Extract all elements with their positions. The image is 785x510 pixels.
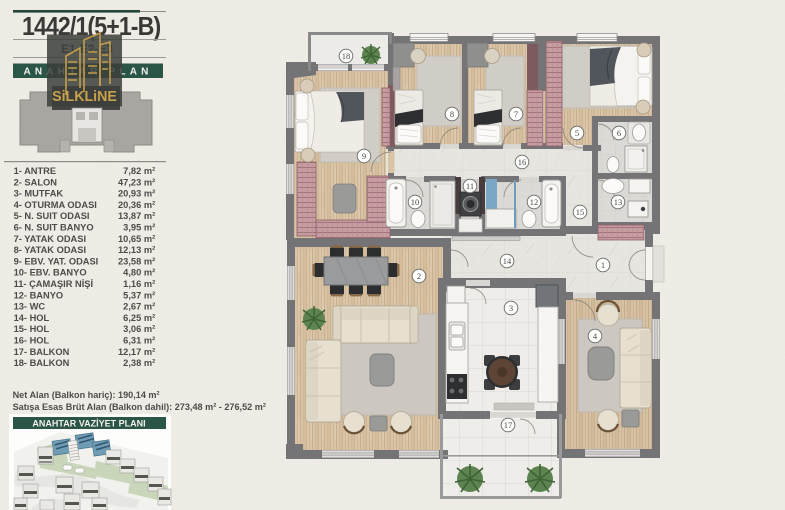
- svg-text:10: 10: [411, 197, 420, 207]
- svg-text:7,82 m²: 7,82 m²: [123, 166, 155, 177]
- svg-text:3- MUTFAK: 3- MUTFAK: [14, 188, 64, 199]
- svg-text:17- BALKON: 17- BALKON: [14, 347, 70, 358]
- svg-text:4,80 m²: 4,80 m²: [123, 268, 155, 279]
- svg-text:14: 14: [503, 256, 512, 266]
- svg-text:1: 1: [601, 260, 605, 270]
- svg-text:20,36 m²: 20,36 m²: [118, 200, 155, 211]
- svg-text:2,67 m²: 2,67 m²: [123, 301, 155, 312]
- svg-text:1- ANTRE: 1- ANTRE: [14, 166, 57, 177]
- svg-text:6: 6: [617, 128, 621, 138]
- svg-text:10- EBV. BANYO: 10- EBV. BANYO: [14, 268, 87, 279]
- svg-text:Satışa Esas Brüt Alan (Balkon: Satışa Esas Brüt Alan (Balkon dahil): 27…: [13, 402, 266, 412]
- svg-text:16: 16: [518, 157, 527, 167]
- svg-text:12: 12: [530, 197, 539, 207]
- svg-text:SiLKLiNE: SiLKLiNE: [52, 89, 117, 105]
- svg-text:Net Alan (Balkon hariç): 190,1: Net Alan (Balkon hariç): 190,14 m²: [13, 390, 160, 400]
- svg-text:11- ÇAMAŞIR NİŞİ: 11- ÇAMAŞIR NİŞİ: [14, 279, 94, 290]
- svg-text:12,13 m²: 12,13 m²: [118, 245, 155, 256]
- svg-text:20,93 m²: 20,93 m²: [118, 188, 155, 199]
- svg-text:3,95 m²: 3,95 m²: [123, 222, 155, 233]
- svg-text:13: 13: [614, 197, 623, 207]
- svg-text:5,37 m²: 5,37 m²: [123, 290, 155, 301]
- svg-text:10,65 m²: 10,65 m²: [118, 234, 155, 245]
- svg-text:6- N. SUIT BANYO: 6- N. SUIT BANYO: [14, 222, 94, 233]
- svg-text:18: 18: [342, 51, 351, 61]
- svg-text:15: 15: [576, 207, 585, 217]
- svg-text:2,38 m²: 2,38 m²: [123, 358, 155, 369]
- svg-text:5- N. SUIT ODASI: 5- N. SUIT ODASI: [14, 211, 90, 222]
- svg-text:8: 8: [450, 109, 454, 119]
- svg-text:9: 9: [362, 151, 366, 161]
- svg-text:7: 7: [514, 109, 518, 119]
- svg-text:47,23 m²: 47,23 m²: [118, 177, 155, 188]
- svg-text:13- WC: 13- WC: [14, 301, 46, 312]
- svg-text:2- SALON: 2- SALON: [14, 177, 58, 188]
- svg-text:14- HOL: 14- HOL: [14, 313, 50, 324]
- svg-text:4- OTURMA ODASI: 4- OTURMA ODASI: [14, 200, 97, 211]
- svg-text:11: 11: [466, 181, 474, 191]
- svg-text:7- YATAK ODASI: 7- YATAK ODASI: [14, 234, 86, 245]
- svg-text:8- YATAK ODASI: 8- YATAK ODASI: [14, 245, 86, 256]
- svg-text:6,31 m²: 6,31 m²: [123, 335, 155, 346]
- svg-text:16- HOL: 16- HOL: [14, 335, 50, 346]
- svg-text:3,06 m²: 3,06 m²: [123, 324, 155, 335]
- svg-text:1,16 m²: 1,16 m²: [123, 279, 155, 290]
- svg-text:9- EBV. YAT. ODASI: 9- EBV. YAT. ODASI: [14, 256, 99, 267]
- svg-text:23,58 m²: 23,58 m²: [118, 256, 155, 267]
- svg-text:15- HOL: 15- HOL: [14, 324, 50, 335]
- svg-text:12,17 m²: 12,17 m²: [118, 347, 155, 358]
- svg-text:5: 5: [575, 128, 579, 138]
- svg-text:18- BALKON: 18- BALKON: [14, 358, 70, 369]
- svg-text:13,87 m²: 13,87 m²: [118, 211, 155, 222]
- svg-text:6,25 m²: 6,25 m²: [123, 313, 155, 324]
- svg-text:12- BANYO: 12- BANYO: [14, 290, 64, 301]
- svg-text:3: 3: [509, 303, 513, 313]
- svg-text:2: 2: [417, 271, 421, 281]
- svg-text:ANAHTAR VAZİYET PLANI: ANAHTAR VAZİYET PLANI: [32, 419, 145, 429]
- svg-text:17: 17: [504, 420, 513, 430]
